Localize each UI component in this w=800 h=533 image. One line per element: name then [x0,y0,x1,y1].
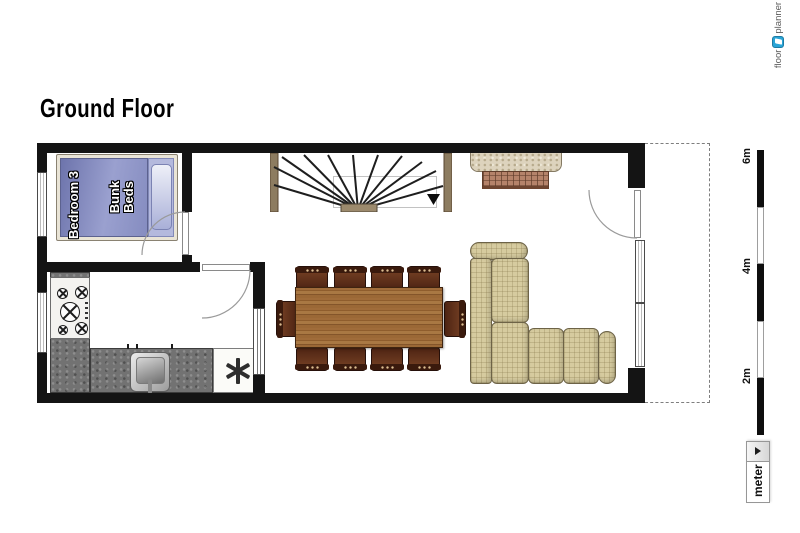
wall-segment [250,262,265,272]
terrace-outline [645,143,710,403]
wall-segment [37,353,47,403]
sofa-cushion [491,258,529,323]
sink-faucet [148,379,152,394]
stove [50,277,90,339]
wall-segment [628,368,645,393]
sofa-cushion [528,328,564,384]
floor-plan: Bedroom 3 Bunk Beds [0,0,800,533]
wall-segment [37,237,47,292]
sofa-backrest [470,258,492,384]
wall-segment [628,143,645,188]
dining-chair [408,347,440,371]
stairs-drawing [270,153,452,212]
scale-tick-2m: 2m [735,364,759,388]
bunk-bed-label-line2: Beds [121,181,136,213]
counter-mark [127,344,129,349]
stove-burner [60,302,80,322]
window [635,240,645,303]
scale-tick-4m: 4m [735,254,759,278]
wall-segment [47,262,200,272]
sofa-cushion [563,328,599,384]
unit-dropdown-value[interactable]: meter [747,462,769,502]
counter-mark [136,344,138,349]
kitchen-sink [130,352,170,392]
stairs-direction-arrow [427,194,440,205]
window [635,303,645,367]
dining-chair [444,301,466,337]
sofa-cushion [491,322,529,384]
kitchen-door [202,264,250,271]
wall-segment [37,393,645,403]
counter-mark [171,344,173,349]
stove-burner [75,286,88,299]
fireplace-mantel [470,152,562,172]
dropdown-arrow-icon [755,448,761,456]
kitchen-interior-window [253,308,265,375]
stairs [270,153,452,212]
fireplace-firebox [482,171,549,189]
dining-chair [296,347,328,371]
sofa-armrest [598,331,616,384]
window [37,292,47,353]
wall-segment [182,153,192,212]
scale-tick-6m: 6m [735,144,759,168]
stove-burner [58,325,68,335]
wall-segment [37,143,645,153]
bedroom-door [182,212,189,255]
stove-burner [57,288,68,299]
dining-chair [371,347,403,371]
stove-knobs [85,300,88,319]
dining-table [295,287,443,348]
wall-segment [253,375,265,393]
stove-burner [75,322,88,335]
unit-dropdown-arrow-button[interactable] [747,442,769,462]
unit-dropdown[interactable]: meter [746,441,770,503]
dining-chair [334,347,366,371]
bunk-bed-label: Bunk Beds [82,167,162,227]
entry-door [634,190,641,238]
wall-segment [253,272,265,308]
